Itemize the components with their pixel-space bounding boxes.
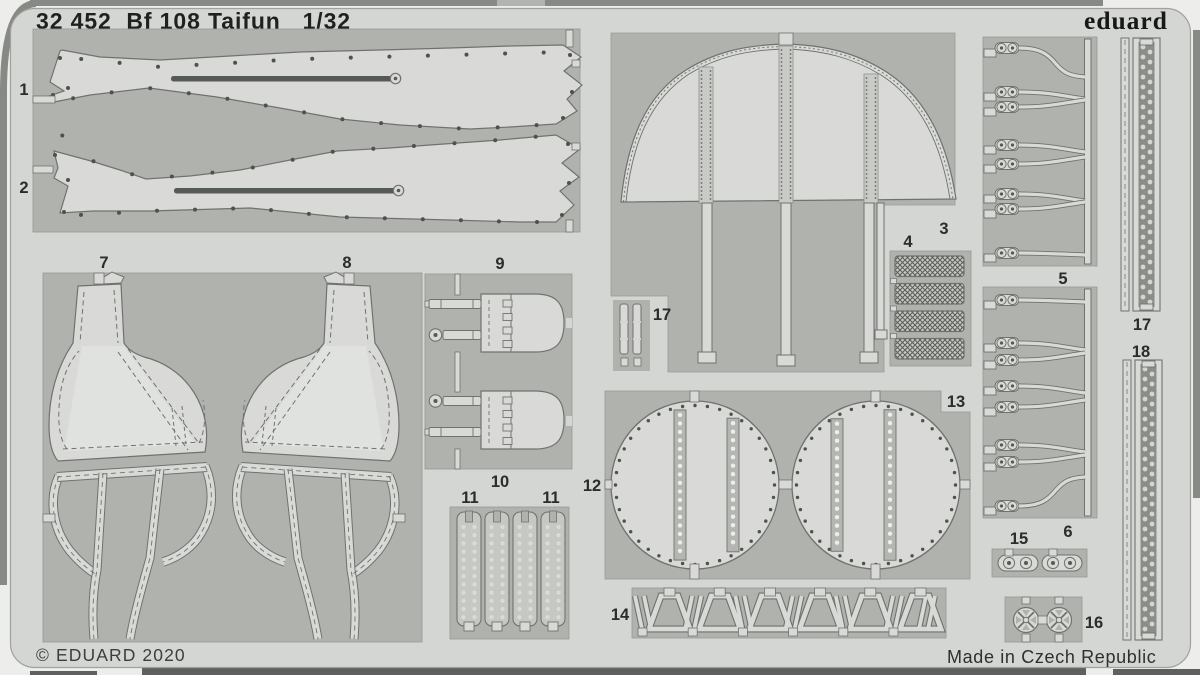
- svg-text:13: 13: [947, 393, 965, 411]
- svg-text:15: 15: [1010, 530, 1028, 548]
- svg-text:4: 4: [903, 233, 913, 251]
- svg-text:18: 18: [1132, 343, 1150, 361]
- svg-text:© EDUARD 2020: © EDUARD 2020: [36, 645, 186, 665]
- svg-text:14: 14: [611, 606, 630, 624]
- svg-text:12: 12: [583, 477, 601, 495]
- svg-text:11: 11: [461, 489, 478, 507]
- svg-text:16: 16: [1085, 614, 1103, 632]
- svg-text:Made in Czech Republic: Made in Czech Republic: [947, 647, 1156, 667]
- svg-text:10: 10: [491, 473, 509, 491]
- svg-text:5: 5: [1058, 270, 1067, 288]
- svg-text:8: 8: [342, 254, 351, 272]
- svg-text:11: 11: [542, 489, 559, 507]
- svg-text:eduard: eduard: [1084, 6, 1168, 35]
- svg-text:3: 3: [939, 220, 948, 238]
- svg-text:1: 1: [19, 81, 28, 99]
- svg-text:9: 9: [495, 255, 504, 273]
- svg-text:17: 17: [1133, 316, 1151, 334]
- svg-text:2: 2: [19, 179, 28, 197]
- svg-text:6: 6: [1063, 523, 1072, 541]
- svg-text:7: 7: [99, 254, 108, 272]
- svg-text:17: 17: [653, 306, 671, 324]
